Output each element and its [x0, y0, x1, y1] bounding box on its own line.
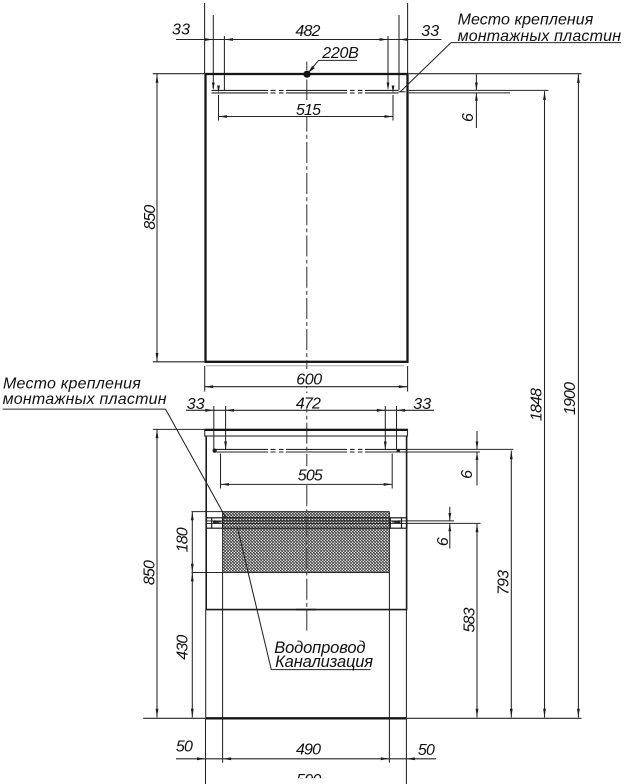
svg-text:Канализация: Канализация: [275, 653, 373, 671]
svg-text:850: 850: [142, 205, 159, 230]
svg-text:220В: 220В: [321, 45, 359, 62]
svg-text:монтажных пластин: монтажных пластин: [458, 28, 622, 45]
svg-text:50: 50: [418, 742, 435, 759]
svg-text:430: 430: [175, 635, 192, 660]
svg-text:505: 505: [298, 468, 323, 485]
svg-text:515: 515: [296, 102, 321, 119]
svg-text:50: 50: [176, 739, 193, 756]
svg-text:1848: 1848: [528, 388, 545, 421]
svg-text:850: 850: [141, 560, 158, 585]
svg-text:793: 793: [495, 570, 512, 595]
svg-text:6: 6: [460, 113, 477, 122]
svg-text:583: 583: [461, 607, 478, 632]
svg-text:монтажных пластин: монтажных пластин: [3, 391, 167, 408]
svg-text:33: 33: [413, 396, 431, 413]
svg-text:Место крепления: Место крепления: [458, 12, 594, 29]
svg-text:472: 472: [296, 395, 321, 412]
svg-text:33: 33: [187, 396, 205, 413]
svg-text:33: 33: [172, 22, 190, 39]
svg-text:33: 33: [421, 23, 439, 40]
svg-text:490: 490: [296, 742, 321, 759]
svg-text:6: 6: [459, 470, 476, 479]
svg-text:180: 180: [175, 527, 192, 552]
svg-text:482: 482: [295, 23, 320, 40]
svg-text:6: 6: [435, 537, 452, 546]
svg-text:600: 600: [296, 371, 322, 388]
svg-text:1900: 1900: [562, 382, 579, 415]
